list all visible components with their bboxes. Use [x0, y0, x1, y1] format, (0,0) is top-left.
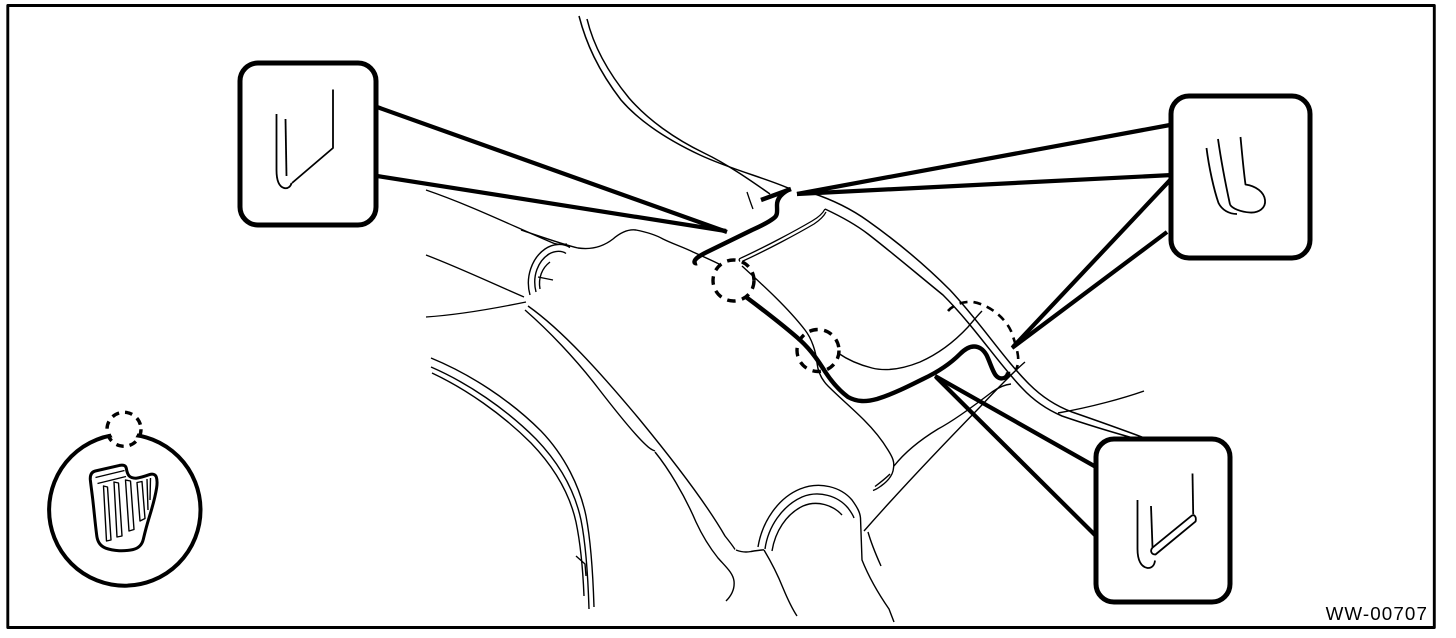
svg-text:WW-00707: WW-00707: [1326, 603, 1428, 624]
